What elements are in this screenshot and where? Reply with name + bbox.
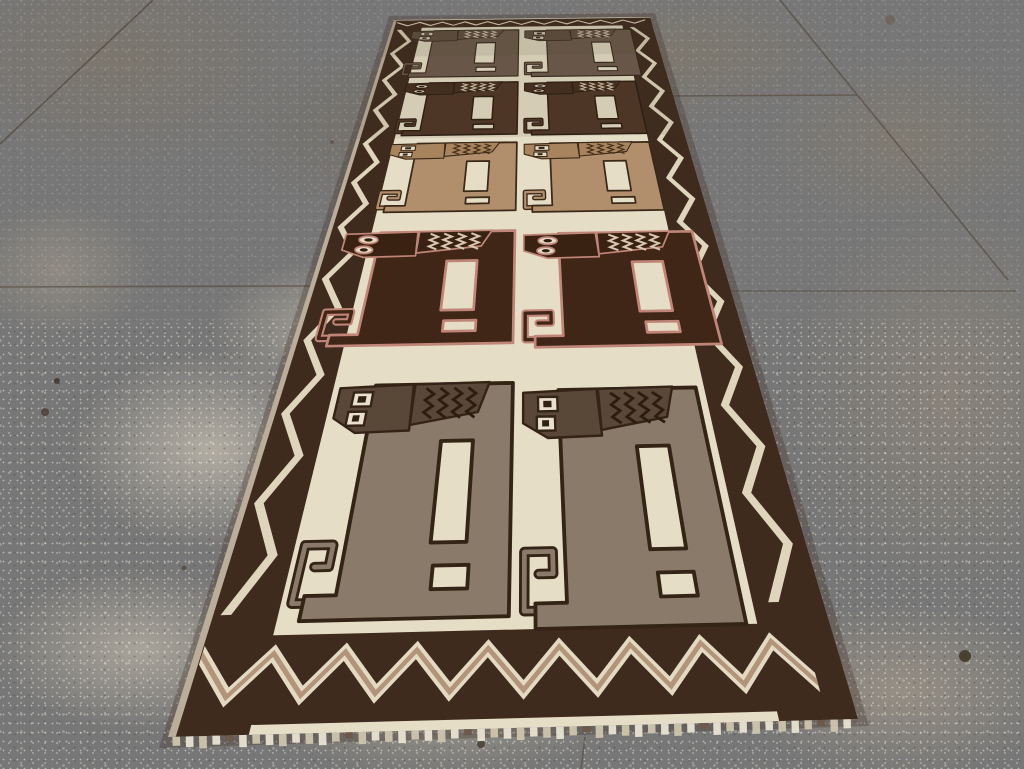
fringe-tick (726, 722, 734, 731)
fringe-tick (358, 732, 366, 744)
fringe-tick (438, 730, 446, 742)
fringe-tick (830, 720, 838, 732)
fringe-tick (372, 732, 380, 741)
fringe-tick (292, 734, 300, 743)
fringe-tick (398, 731, 406, 743)
fringe-tick (517, 728, 525, 740)
fringe-tick (739, 722, 747, 733)
lion-eye-pupil (543, 239, 551, 242)
lion-eye-pupil (403, 154, 408, 156)
fringe-tick (319, 733, 327, 745)
lion-eye-pupil (542, 420, 549, 426)
grout-line (0, 0, 153, 144)
fringe-tick (543, 727, 551, 738)
rug (168, 17, 858, 737)
fringe-tick (212, 736, 220, 745)
grout-line (660, 95, 857, 96)
photo-stage (0, 0, 1024, 769)
fringe-tick (279, 734, 287, 746)
fringe-tick (648, 724, 656, 733)
lion-head (524, 143, 579, 159)
lion-eye-pupil (542, 249, 550, 252)
lion-eye-pupil (364, 238, 372, 241)
floor-spot (959, 650, 971, 662)
fringe-tick (172, 737, 180, 746)
fringe-tick (226, 735, 234, 741)
floor-spot (182, 566, 187, 571)
fringe-tick (687, 723, 695, 732)
fringe-tick (843, 719, 851, 728)
fringe-tick (239, 735, 247, 747)
fringe-tick (817, 720, 825, 726)
lion-head (523, 389, 602, 438)
fringe-tick (556, 727, 564, 739)
lion-eye-pupil (538, 153, 543, 155)
fringe-tick (451, 729, 459, 738)
grout-line (0, 286, 312, 287)
floor-spot (330, 140, 334, 144)
fringe-tick (713, 723, 721, 735)
fringe-tick (490, 728, 498, 737)
fringe-tick (477, 729, 485, 741)
fringe-tick (411, 731, 419, 740)
floor-spot (54, 378, 60, 384)
fringe-tick (804, 720, 812, 729)
floor-spot (41, 408, 49, 416)
floor-spot (477, 740, 485, 748)
lion-eye-pupil (539, 147, 545, 149)
lion-head (342, 232, 418, 258)
fringe-tick (504, 728, 512, 739)
floor-spot (885, 15, 895, 25)
scene-svg (0, 0, 1024, 769)
lion-eye-pupil (357, 396, 367, 403)
fringe-tick (791, 721, 799, 733)
fringe-tick (425, 730, 433, 741)
fringe-tick (700, 723, 708, 729)
grout-line (581, 737, 585, 769)
lion-eye-pupil (543, 401, 551, 408)
fringe-tick (569, 726, 577, 735)
fringe-tick (305, 733, 313, 744)
fringe-tick (345, 732, 353, 738)
lion-eye-pupil (352, 415, 360, 421)
grout-line (780, 0, 1008, 280)
lion-head (389, 143, 445, 159)
lion-eye-pupil (360, 248, 368, 251)
fringe-tick (635, 725, 643, 737)
fringe-tick (778, 721, 786, 732)
fringe-tick (464, 729, 472, 735)
fringe-tick (582, 726, 590, 732)
fringe-tick (186, 736, 194, 747)
fringe-tick (622, 725, 630, 736)
lion-head (524, 233, 600, 259)
fringe-tick (252, 735, 260, 744)
fringe-tick (752, 722, 760, 734)
fringe-tick (385, 731, 393, 742)
fringe-tick (266, 734, 274, 745)
fringe-tick (661, 724, 669, 735)
fringe-tick (332, 733, 340, 742)
fringe-tick (596, 726, 604, 738)
fringe-tick (530, 727, 538, 736)
fringe-tick (674, 724, 682, 736)
lion-eye-pupil (405, 147, 411, 149)
fringe-tick (609, 725, 617, 734)
fringe-tick (199, 736, 207, 748)
fringe-tick (765, 721, 773, 730)
rug-far-shading-2 (382, 17, 660, 57)
